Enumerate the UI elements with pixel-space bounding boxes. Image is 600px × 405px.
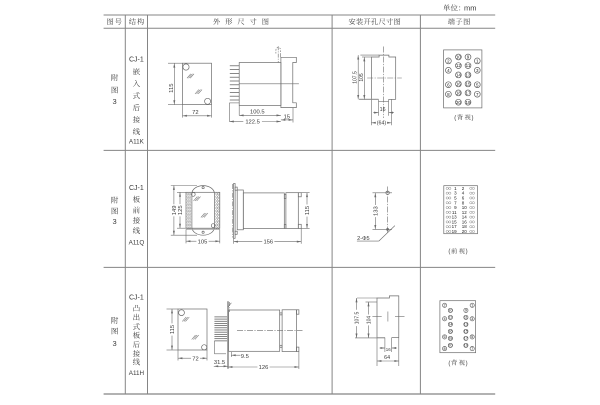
svg-text:107.5: 107.5 (354, 311, 360, 324)
svg-text:9.5: 9.5 (241, 354, 249, 360)
svg-text:11: 11 (466, 63, 471, 68)
svg-text:16: 16 (380, 107, 386, 113)
svg-text:16: 16 (456, 82, 462, 87)
svg-text:10: 10 (448, 309, 452, 313)
svg-text:(64): (64) (377, 121, 387, 127)
svg-text:3: 3 (113, 97, 117, 106)
svg-text:5: 5 (471, 335, 473, 339)
svg-text:133: 133 (373, 206, 379, 216)
svg-text:mm: mm (464, 4, 477, 13)
svg-text:115: 115 (169, 84, 175, 93)
svg-text:18: 18 (456, 91, 462, 96)
svg-text:156: 156 (263, 240, 273, 246)
svg-text:16: 16 (386, 347, 391, 352)
svg-text:105: 105 (198, 239, 208, 245)
svg-text:64: 64 (384, 355, 390, 361)
svg-text:13: 13 (465, 73, 471, 78)
svg-text:15: 15 (465, 82, 471, 87)
svg-text:10: 10 (456, 55, 462, 60)
svg-text:115: 115 (170, 325, 176, 334)
svg-text:(: ( (454, 116, 456, 122)
svg-text:7: 7 (471, 347, 473, 351)
svg-text:12: 12 (448, 316, 452, 320)
svg-text:126: 126 (259, 365, 269, 371)
svg-text:17: 17 (465, 91, 471, 96)
svg-text:12: 12 (456, 63, 462, 68)
svg-text:): ) (466, 361, 468, 367)
svg-text:): ) (466, 249, 468, 255)
svg-text:A11H: A11H (129, 370, 145, 377)
svg-text:149: 149 (172, 206, 178, 216)
svg-text:105: 105 (359, 73, 365, 82)
svg-text:9: 9 (465, 309, 467, 313)
svg-text:): ) (472, 116, 474, 122)
svg-text:A11Q: A11Q (129, 239, 145, 246)
svg-text:8: 8 (444, 347, 446, 351)
svg-text:14: 14 (456, 73, 462, 78)
svg-text:2-Φ5: 2-Φ5 (357, 236, 370, 242)
svg-text:19: 19 (465, 100, 471, 105)
svg-text:CJ-1: CJ-1 (129, 295, 144, 302)
svg-text:31.5: 31.5 (214, 360, 225, 366)
svg-text:104: 104 (366, 316, 372, 325)
svg-text:13: 13 (464, 323, 468, 327)
svg-text:3: 3 (471, 317, 473, 321)
svg-text:19: 19 (464, 344, 468, 348)
svg-text:107.5: 107.5 (352, 71, 358, 84)
svg-text:72: 72 (192, 110, 198, 116)
svg-text:122.5: 122.5 (245, 119, 260, 125)
svg-text:16: 16 (448, 330, 452, 334)
svg-text:19: 19 (452, 229, 458, 234)
svg-text:14: 14 (448, 323, 452, 327)
svg-text:CJ-1: CJ-1 (129, 56, 144, 63)
svg-text:3: 3 (113, 217, 117, 226)
svg-text:(: ( (448, 361, 450, 367)
svg-text:20: 20 (462, 229, 468, 234)
svg-text:20: 20 (448, 344, 452, 348)
svg-text:17: 17 (464, 337, 468, 341)
svg-text:72: 72 (192, 356, 198, 362)
svg-text:A11K: A11K (129, 139, 145, 146)
svg-text:1: 1 (471, 304, 473, 308)
svg-text:4: 4 (444, 317, 446, 321)
svg-text:125: 125 (178, 205, 184, 215)
svg-text:115: 115 (305, 206, 311, 215)
svg-text:18: 18 (448, 337, 452, 341)
svg-text:2: 2 (444, 304, 446, 308)
svg-text:3: 3 (113, 339, 117, 348)
svg-text:20: 20 (456, 100, 462, 105)
svg-text:15: 15 (464, 330, 468, 334)
svg-text:11: 11 (464, 316, 468, 320)
svg-text:(: ( (448, 249, 450, 255)
svg-text:6: 6 (444, 335, 446, 339)
svg-text:100.5: 100.5 (250, 110, 265, 116)
svg-text:CJ-1: CJ-1 (129, 185, 144, 192)
